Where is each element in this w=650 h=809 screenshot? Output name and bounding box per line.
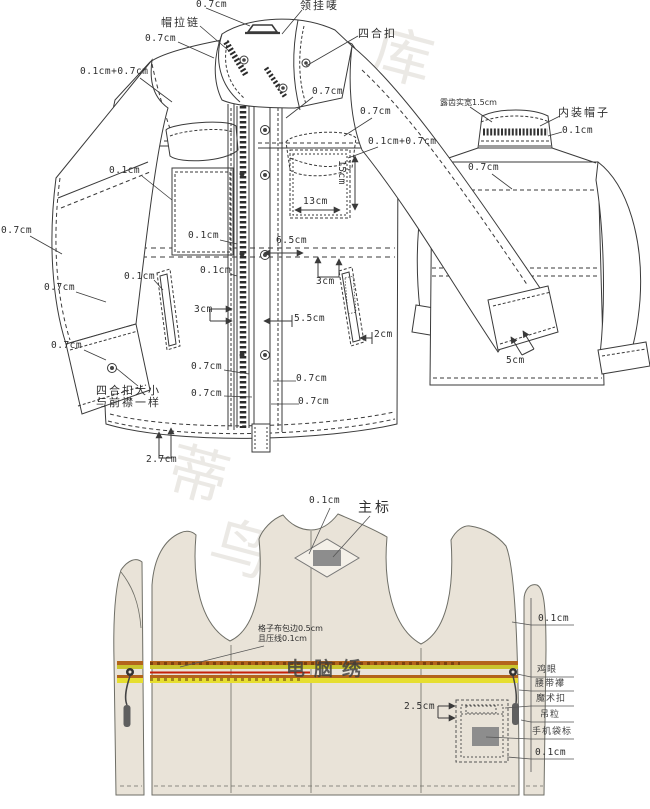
technical-drawing-lineart	[0, 0, 650, 809]
embroidery-sample-text: 电脑绣	[286, 660, 370, 679]
front-view-drawing	[30, 8, 558, 458]
lining-view-drawing	[114, 508, 574, 795]
page: 库蒂鸟图库	[0, 0, 650, 809]
